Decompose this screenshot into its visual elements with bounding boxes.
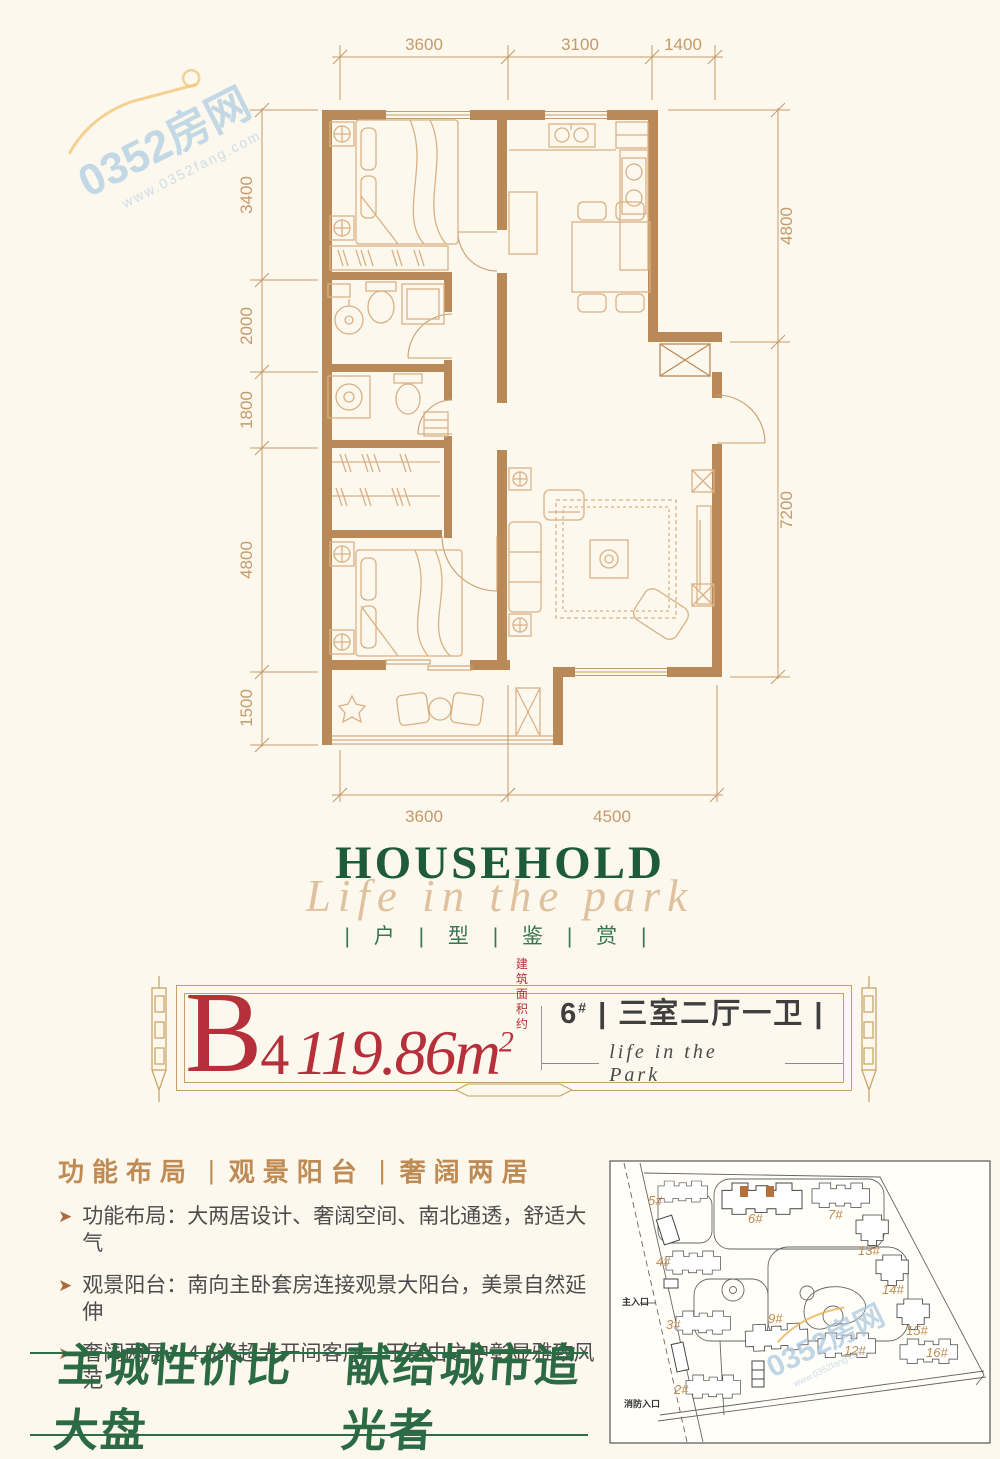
banner-frame: B 4 119.86m2 建筑 面积约 6# | 三室二厅一卫 | life i…	[184, 993, 844, 1083]
bldg-label-9: 9#	[768, 1311, 783, 1326]
walls	[322, 110, 722, 745]
bldg-label-4: 4#	[656, 1254, 671, 1269]
dim-left-4: 4800	[237, 541, 256, 579]
area-note-line2: 面积约	[516, 987, 529, 1031]
poster-page: 0352房网 www.0352fang.com 3600 3100 1400 3…	[0, 0, 1000, 1459]
slogan-banner: 主城性价比大盘 献给城市追光者	[30, 1352, 588, 1436]
banner-tagline: life in the Park	[609, 1041, 775, 1087]
heading-divider-2: |	[379, 1155, 386, 1186]
dim-left-1: 3400	[237, 176, 256, 214]
dim-top-1: 3600	[405, 35, 443, 54]
dim-right-1: 4800	[777, 207, 796, 245]
bldg-label-16: 16#	[926, 1345, 948, 1360]
title-chinese: | 户 | 型 | 鉴 | 赏 |	[0, 920, 1000, 950]
dim-bottom-1: 3600	[405, 807, 443, 826]
bldg-label-15: 15#	[906, 1323, 928, 1338]
banner-tagline-row: life in the Park	[542, 1041, 843, 1087]
dim-left-5: 1500	[237, 689, 256, 727]
unit-area-value: 119.86m2	[295, 1027, 511, 1078]
dim-left-2: 2000	[237, 307, 256, 345]
area-superscript: 2	[499, 1025, 512, 1058]
master-bedroom-furniture	[330, 542, 462, 656]
kitchen-furniture	[509, 122, 648, 270]
dim-top-2: 3100	[561, 35, 599, 54]
room-layout: | 三室二厅一卫 |	[598, 998, 824, 1030]
dim-left-3: 1800	[237, 391, 256, 429]
highlighted-unit	[766, 1186, 774, 1197]
feature-text-2: 观景阳台：南向主卧套房连接观景大阳台，美景自然延伸	[82, 1272, 603, 1327]
highlighted-unit	[740, 1186, 748, 1197]
arrow-bullet-icon: ➤	[58, 1272, 72, 1299]
bldg-label-13: 13#	[858, 1243, 880, 1258]
dim-bottom-2: 4500	[593, 807, 631, 826]
bldg-label-6: 6#	[748, 1211, 763, 1226]
balcony-furniture	[339, 688, 540, 736]
feature-item-2: ➤ 观景阳台：南向主卧套房连接观景大阳台，美景自然延伸	[58, 1272, 603, 1327]
closet-furniture	[332, 454, 440, 506]
flue-box	[660, 344, 710, 376]
unit-letter: B	[185, 988, 262, 1078]
area-note-line1: 建筑	[516, 957, 529, 986]
main-entrance-label: 主入口	[622, 1296, 649, 1307]
bldg-label-5: 5#	[648, 1193, 663, 1208]
features-heading: 功能布局 | 观景阳台 | 奢阔两居	[58, 1152, 603, 1189]
unit-number: 4	[260, 1032, 289, 1078]
dining-furniture	[572, 202, 650, 312]
bldg-label-2: 2#	[673, 1382, 689, 1397]
arrow-bullet-icon: ➤	[58, 1203, 72, 1230]
bedroom2-furniture	[330, 120, 458, 270]
site-map: 5# 6# 7# 13# 14# 15# 16# 12# 9# 4# 3# 2#…	[600, 1153, 1000, 1453]
living-room-furniture	[509, 468, 714, 643]
banner-ornament-right-icon	[849, 974, 889, 1104]
heading-divider-1: |	[208, 1155, 215, 1186]
tagline-dash-left	[542, 1063, 600, 1064]
floor-plan: 3600 3100 1400 3400 2000 1800 4800 1500 …	[0, 0, 1000, 832]
banner-layout-info: 6# | 三室二厅一卫 | life in the Park	[542, 994, 843, 1082]
fire-entrance-label: 消防入口	[624, 1398, 660, 1409]
area-note: 建筑 面积约	[516, 957, 541, 1032]
bldg-label-7: 7#	[828, 1207, 843, 1222]
bathroom1-furniture	[328, 282, 444, 334]
feature-item-1: ➤ 功能布局：大两居设计、奢阔空间、南北通透，舒适大气	[58, 1203, 603, 1258]
banner-unit-area: B 4 119.86m2 建筑 面积约	[185, 994, 541, 1082]
building-number: 6	[560, 998, 578, 1030]
feature-heading-2: 观景阳台	[229, 1152, 365, 1189]
bldg-label-14: 14#	[882, 1282, 904, 1297]
feature-heading-3: 奢阔两居	[400, 1152, 536, 1189]
title-script: Life in the park	[0, 874, 1000, 919]
banner-ornament-left-icon	[139, 974, 179, 1104]
slogan-right: 献给城市追光者	[339, 1329, 592, 1459]
bathroom2-furniture	[328, 374, 448, 436]
dim-top-3: 1400	[664, 35, 702, 54]
title-block: HOUSEHOLD Life in the park | 户 | 型 | 鉴 |…	[0, 840, 1000, 950]
bldg-label-3: 3#	[666, 1317, 681, 1332]
building-hash: #	[578, 999, 588, 1015]
building-layout: 6# | 三室二厅一卫 |	[560, 990, 824, 1032]
feature-heading-1: 功能布局	[58, 1152, 194, 1189]
area-number: 119.86m	[295, 1017, 498, 1088]
tagline-dash-right	[785, 1063, 843, 1064]
unit-banner: B 4 119.86m2 建筑 面积约 6# | 三室二厅一卫 | life i…	[176, 985, 852, 1091]
feature-text-1: 功能布局：大两居设计、奢阔空间、南北通透，舒适大气	[82, 1203, 603, 1258]
slogan-left: 主城性价比大盘	[51, 1329, 304, 1459]
dim-right-2: 7200	[777, 491, 796, 529]
